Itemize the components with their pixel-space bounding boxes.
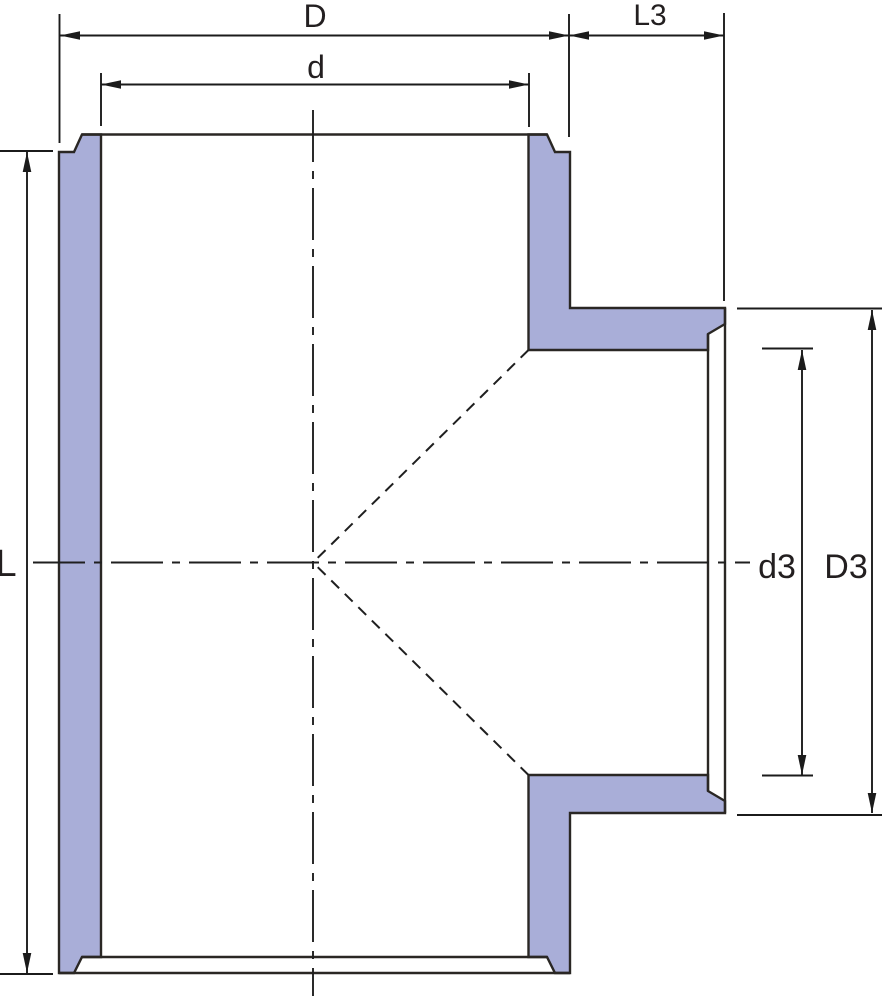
dimension-L-arrow-top xyxy=(23,152,32,172)
hidden-intersection-line-lower xyxy=(313,563,529,776)
dimension-L-arrow-bottom xyxy=(23,953,32,973)
dimension-D3-arrow-bottom xyxy=(868,793,877,813)
dimension-d-arrow-right xyxy=(509,80,529,89)
dimension-D-arrow-right xyxy=(549,31,569,40)
left-wall-section xyxy=(59,135,101,974)
dimension-D3-label: D3 xyxy=(824,548,867,586)
upper-branch-wall-section xyxy=(529,135,726,351)
dimension-d3-arrow-top xyxy=(798,350,807,370)
part-edges xyxy=(59,135,725,974)
dimension-d3-label: d3 xyxy=(758,548,796,586)
dimension-L3-label: L3 xyxy=(633,0,666,32)
dimension-d-label: d xyxy=(307,49,325,85)
lower-branch-wall-section xyxy=(529,775,726,973)
dimension-L3-arrow-right xyxy=(704,31,724,40)
dimension-L3: L3 xyxy=(569,0,724,301)
dimension-L3-arrow-left xyxy=(569,31,589,40)
dimension-D-label: D xyxy=(303,0,326,34)
tee-fitting-drawing-canvas: D d L3 L xyxy=(0,0,884,1000)
dimension-d: d xyxy=(101,49,529,127)
hidden-intersection-line-upper xyxy=(313,350,529,563)
centerlines xyxy=(33,110,750,996)
dimension-L-label: L xyxy=(0,543,17,585)
dimension-D3-arrow-top xyxy=(868,310,877,330)
dimension-D-arrow-left xyxy=(60,31,80,40)
dimension-d3: d3 xyxy=(758,349,813,776)
part-section-walls xyxy=(59,135,725,974)
dimension-d3-arrow-bottom xyxy=(798,755,807,775)
dimension-d-arrow-left xyxy=(101,80,121,89)
tee-section-drawing: D d L3 L xyxy=(0,0,884,1000)
